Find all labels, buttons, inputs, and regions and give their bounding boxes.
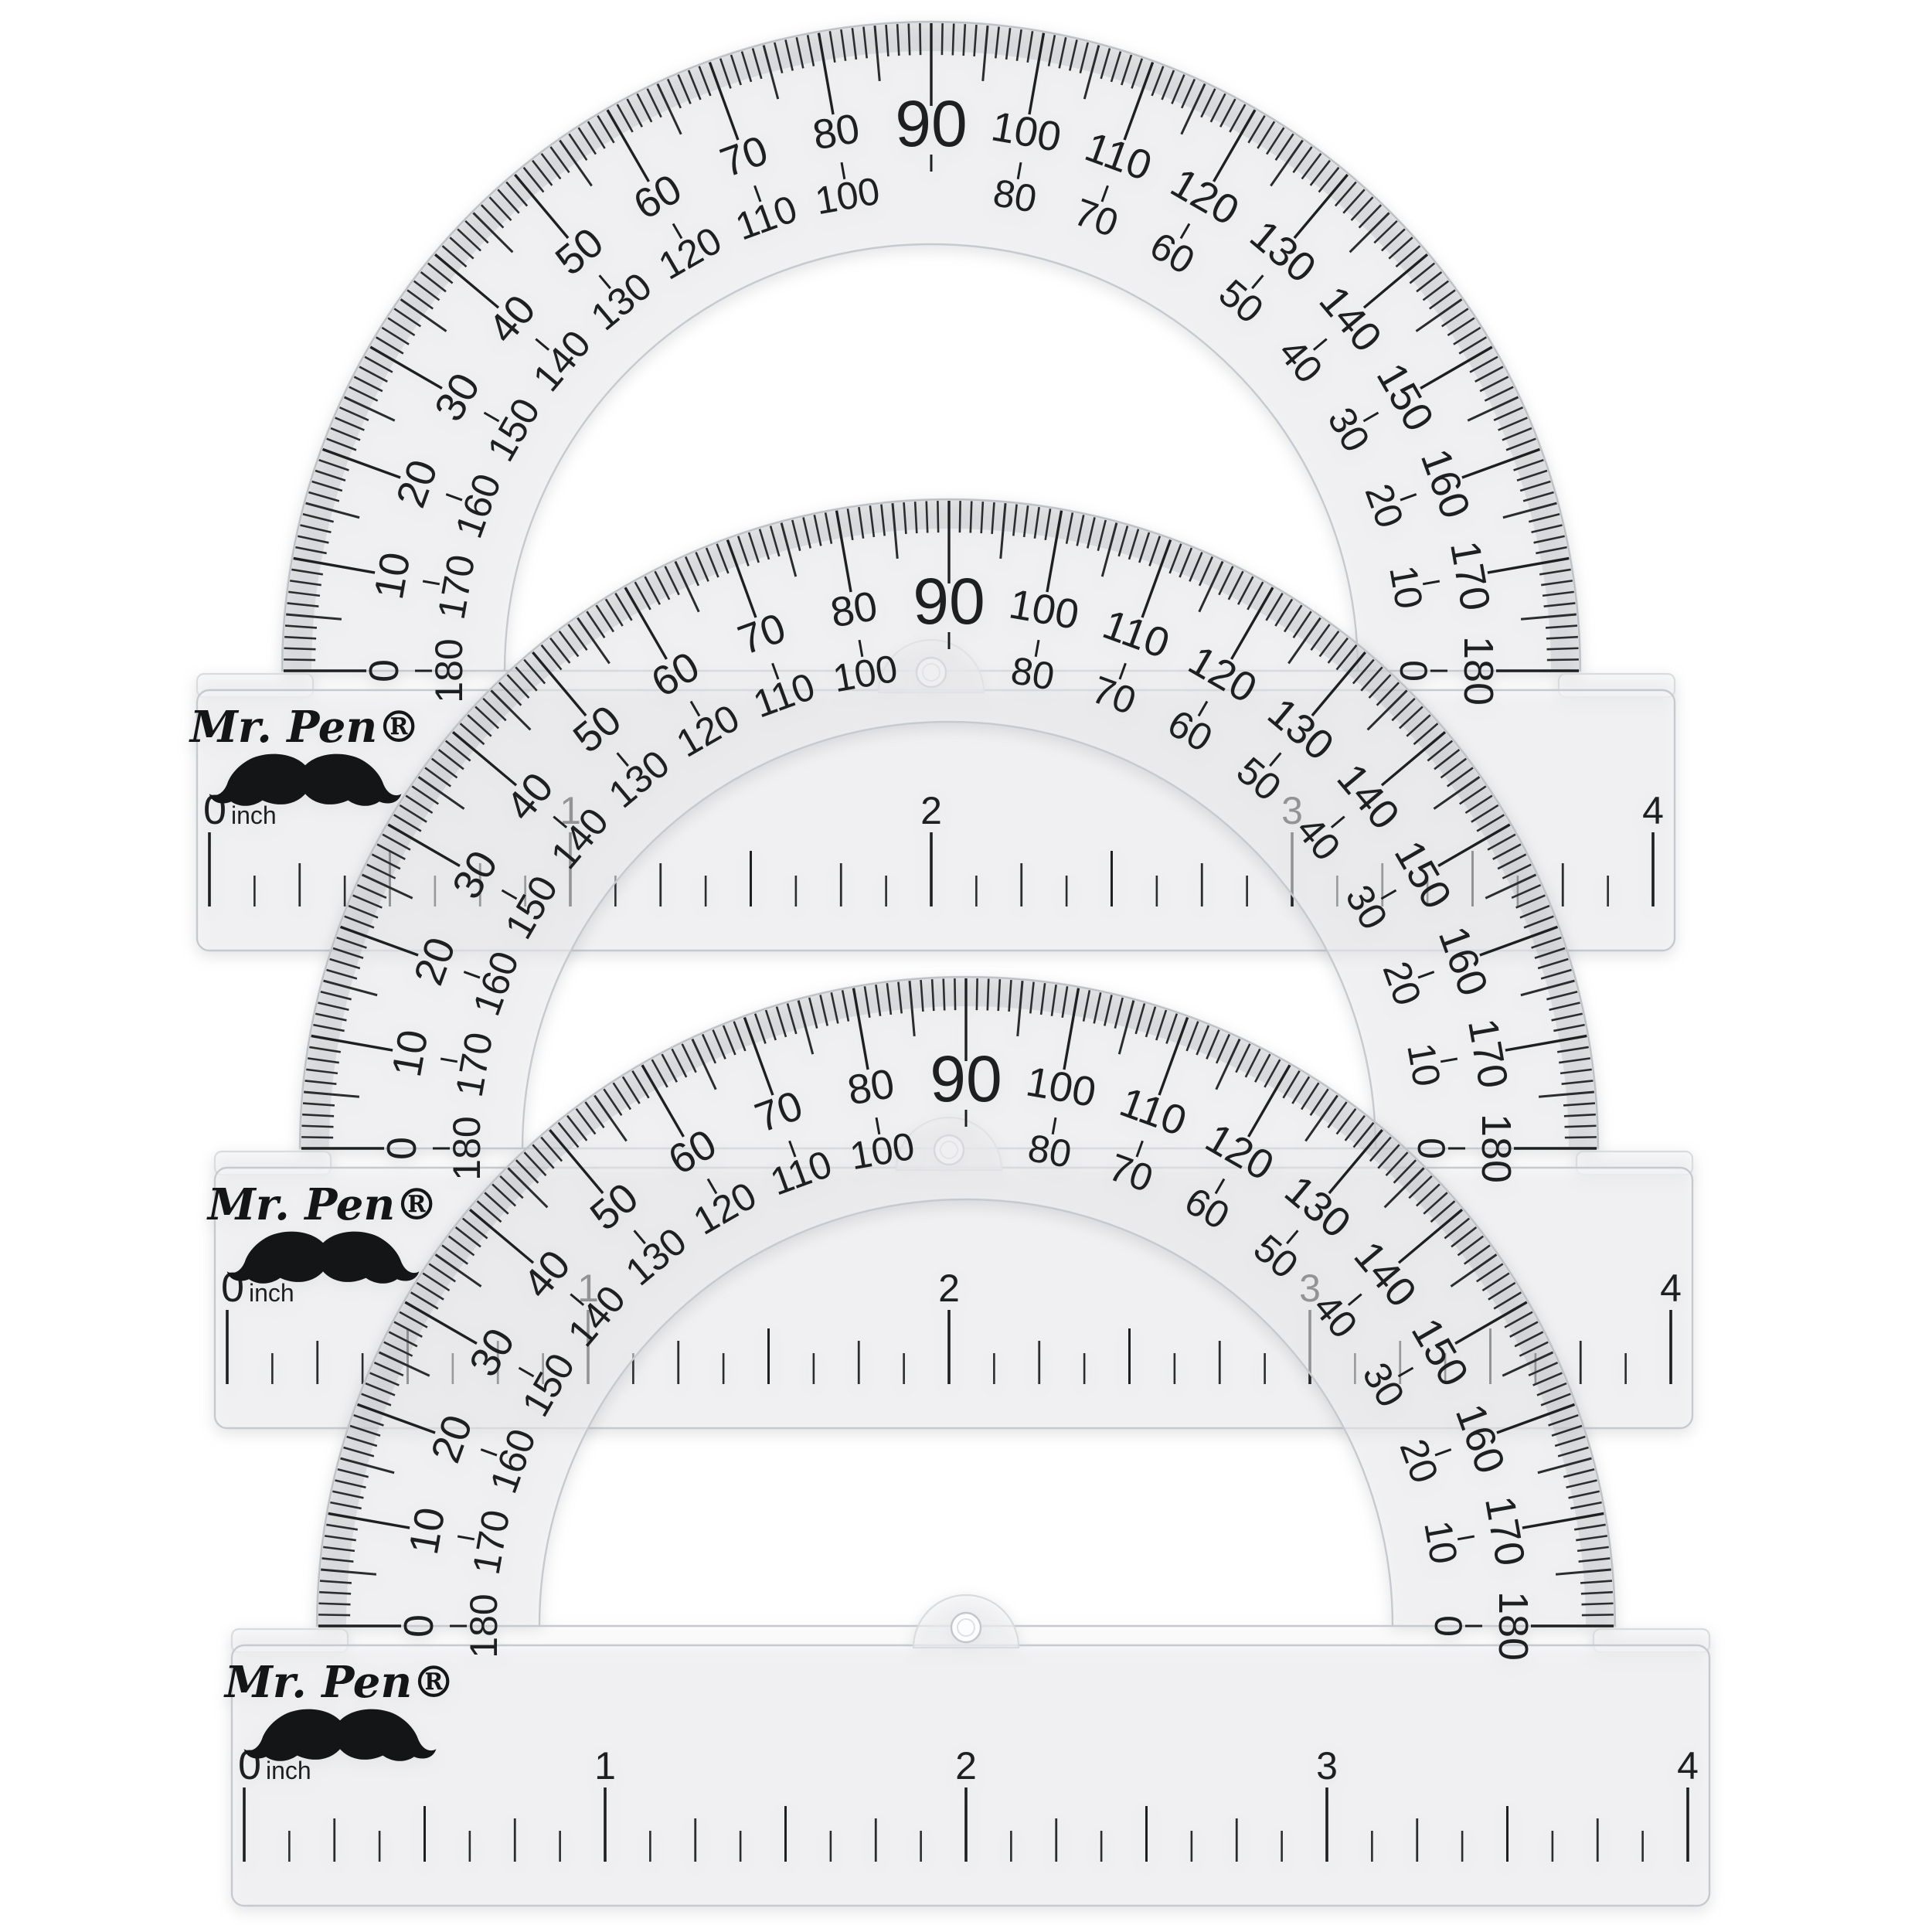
degree-label-outer: 80: [844, 1060, 898, 1114]
degree-label-apex-90: 90: [913, 565, 985, 638]
degree-label-inner: 0: [1410, 1138, 1453, 1159]
ruler-inch-label: 2: [938, 1267, 960, 1310]
degree-label-inner: 180: [445, 1116, 488, 1180]
ruler-inch-label: 3: [1316, 1744, 1338, 1787]
degree-label-inner: 180: [462, 1594, 505, 1658]
brand-logo-text: Mr. Pen®: [206, 1179, 438, 1230]
degree-label-outer: 180: [1473, 1114, 1519, 1183]
degree-label-inner: 10: [1399, 1039, 1449, 1090]
center-hole: [951, 1613, 981, 1642]
degree-label-inner: 0: [1427, 1615, 1470, 1637]
degree-label-inner: 10: [1416, 1517, 1466, 1567]
degree-label-apex-90: 90: [895, 87, 967, 160]
brand-logo-text: Mr. Pen®: [189, 702, 420, 753]
degree-label-outer: 0: [396, 1614, 442, 1638]
degree-label-outer: 80: [827, 583, 881, 637]
degree-label-inner: 0: [1392, 660, 1435, 682]
ruler-end-label: 4: [1660, 1267, 1682, 1310]
degree-label-outer: 0: [379, 1137, 425, 1160]
ruler-end-label: 4: [1677, 1744, 1699, 1787]
ruler-unit-label: inch: [266, 1757, 311, 1784]
degree-label-inner: 180: [427, 638, 471, 702]
degree-label-inner: 80: [1025, 1126, 1075, 1176]
degree-label-outer: 180: [1490, 1591, 1536, 1661]
degree-label-outer: 80: [809, 105, 863, 159]
brand-logo-text: Mr. Pen®: [223, 1657, 455, 1708]
degree-label-outer: 10: [400, 1504, 454, 1558]
degree-label-outer: 0: [361, 659, 407, 682]
protractor-stack-image: 0102030405060708090100110120130140150160…: [0, 0, 1932, 1932]
ruler-unit-label: inch: [231, 801, 277, 829]
ruler-inch-label: 2: [955, 1744, 977, 1787]
degree-label-apex-90: 90: [930, 1043, 1002, 1115]
product-photo: 0102030405060708090100110120130140150160…: [0, 0, 1932, 1932]
ruler-unit-label: inch: [249, 1279, 294, 1307]
ruler-inch-label: 1: [594, 1744, 616, 1787]
degree-label-inner: 80: [1008, 648, 1058, 699]
degree-label-outer: 180: [1455, 636, 1502, 706]
ruler-end-label: 4: [1642, 789, 1664, 832]
ruler-inch-label: 2: [920, 789, 942, 832]
degree-label-outer: 10: [366, 549, 420, 603]
degree-label-inner: 80: [990, 171, 1040, 221]
degree-label-outer: 10: [383, 1026, 437, 1080]
degree-label-inner: 10: [1381, 562, 1431, 612]
